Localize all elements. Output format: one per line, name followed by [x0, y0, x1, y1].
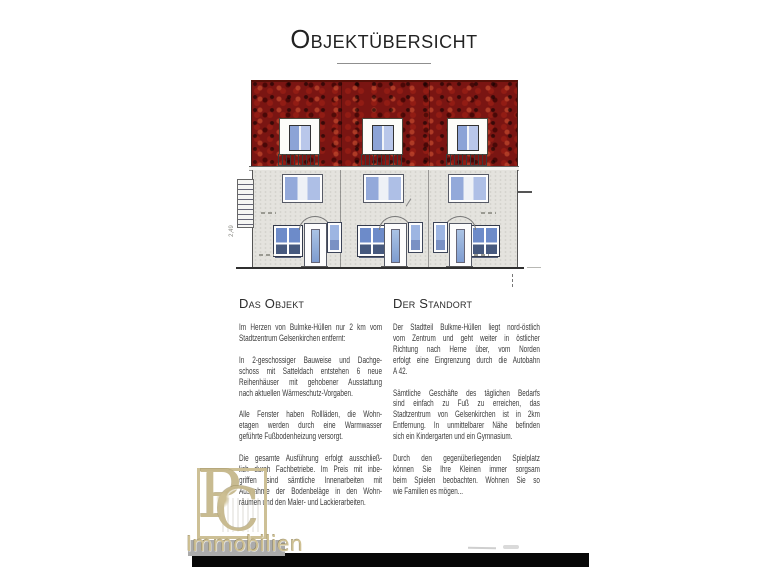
text-line: können Sie Ihre Kleinen immer sorgsam — [393, 464, 540, 475]
dormer-window — [372, 125, 394, 151]
scan-smudge — [503, 545, 519, 549]
balcony-railing — [446, 154, 487, 166]
text-line: Durch den gegenüberliegenden Spielplatz — [393, 453, 540, 464]
elevation-mark — [259, 254, 274, 256]
text-line: In 2-geschossiger Bauweise und Dachge- — [239, 355, 382, 366]
text-line: geführte Fußbodenheizung versorgt. — [239, 431, 382, 442]
roof-seam — [429, 82, 430, 168]
dimension-tick — [512, 274, 513, 287]
slim-window — [409, 223, 422, 252]
slim-window — [434, 223, 447, 252]
text-line: Sämtliche Geschäfte des täglichen Bedarf… — [393, 388, 540, 399]
upper-floor-window — [283, 175, 322, 202]
logo-ornament — [216, 492, 230, 508]
roof-seam — [341, 82, 342, 168]
balcony-railing — [278, 154, 319, 166]
dormer-window — [457, 125, 479, 151]
house-divider — [428, 170, 429, 268]
text-line: Stadtzentrum Gelsenkirchen entfernt: — [239, 333, 382, 344]
page-title: Objektübersicht — [0, 26, 768, 55]
logo-wordmark: Immobilien — [186, 534, 303, 555]
elevation-mark — [474, 254, 489, 256]
door-glass — [391, 229, 400, 263]
text-line: nach aktuellen Wärmeschutz-Vorgaben. — [239, 388, 382, 399]
door-glass — [311, 229, 320, 263]
dormer-window — [289, 125, 311, 151]
text-line: etagen werden durch eine Warmwasser — [239, 420, 382, 431]
entrance-door — [304, 223, 327, 269]
ground-line-faint — [527, 267, 541, 268]
text-line: Die gesamte Ausführung erfolgt ausschlie… — [239, 453, 382, 464]
text-line: Alle Fenster haben Rollläden, die Wohn- — [239, 409, 382, 420]
section-heading: Der Standort — [393, 296, 597, 311]
paragraph: Der Stadtteil Bulkme-Hüllen liegt nord-ö… — [393, 322, 540, 377]
house-divider — [340, 170, 341, 268]
dormer — [279, 118, 320, 155]
text-line: beim Spielen beobachten. Wohnen Sie so — [393, 475, 540, 486]
text-line: Im Herzen von Bulmke-Hüllen nur 2 km vom — [239, 322, 382, 333]
title-underline — [337, 63, 431, 64]
ground-floor-window — [471, 226, 499, 256]
paragraph: Im Herzen von Bulmke-Hüllen nur 2 km vom… — [239, 322, 382, 344]
ground-line — [236, 267, 524, 269]
text-line: sind einfach zu Fuß zu erreichen, das — [393, 398, 540, 409]
dimension-note: 2,49 — [229, 225, 235, 237]
text-line: Entfernung. In unmittelbarer Nähe befind… — [393, 420, 540, 431]
section-body: Der Stadtteil Bulkme-Hüllen liegt nord-ö… — [393, 322, 540, 497]
scan-smudge — [468, 547, 496, 549]
balcony-railing — [361, 154, 402, 166]
dormer — [362, 118, 403, 155]
door-glass — [456, 229, 465, 263]
trellis — [237, 179, 254, 228]
elevation-mark — [481, 212, 496, 214]
paragraph: In 2-geschossiger Bauweise und Dachge-sc… — [239, 355, 382, 399]
text-line: A 42. — [393, 366, 540, 377]
text-line: Stadtzentrum von Gelsenkirchen ist in 2k… — [393, 409, 540, 420]
upper-floor-window — [449, 175, 488, 202]
ground-floor-window — [274, 226, 302, 256]
paragraph: Sämtliche Geschäfte des täglichen Bedarf… — [393, 388, 540, 443]
text-line: schoss mit Satteldach entstehen 6 neue — [239, 366, 382, 377]
upper-floor-window — [364, 175, 403, 202]
entrance-door — [384, 223, 407, 269]
building-elevation-drawing: 2,49 — [230, 78, 542, 293]
entrance-door — [449, 223, 472, 269]
elevation-mark — [261, 212, 276, 214]
ground-floor-window — [358, 226, 386, 256]
text-line: sich ein Kindergarten und ein Gymnasium. — [393, 431, 540, 442]
text-line: Reihenhäuser mit gehobener Ausstattung — [239, 377, 382, 388]
side-mark — [517, 191, 532, 193]
pencil-scribble — [406, 198, 412, 206]
text-line: Richtung nach Herne über, vom Norden — [393, 344, 540, 355]
text-line: vom Zentrum und geht weiter in östlicher — [393, 333, 540, 344]
dormer — [447, 118, 488, 155]
text-line: Der Stadtteil Bulkme-Hüllen liegt nord-ö… — [393, 322, 540, 333]
section-der-standort: Der Standort Der Stadtteil Bulkme-Hüllen… — [393, 296, 597, 508]
paragraph: Durch den gegenüberliegenden Spielplatzk… — [393, 453, 540, 497]
slim-window — [328, 223, 341, 252]
logo-monogram-letter-c: C — [214, 480, 260, 540]
document-page: Objektübersicht — [0, 0, 768, 567]
text-line: wie Familien es mögen... — [393, 486, 540, 497]
text-line: erfolgt eine Eingrenzung durch die Autob… — [393, 355, 540, 366]
facade — [252, 170, 518, 269]
paragraph: Alle Fenster haben Rollläden, die Wohn-e… — [239, 409, 382, 442]
